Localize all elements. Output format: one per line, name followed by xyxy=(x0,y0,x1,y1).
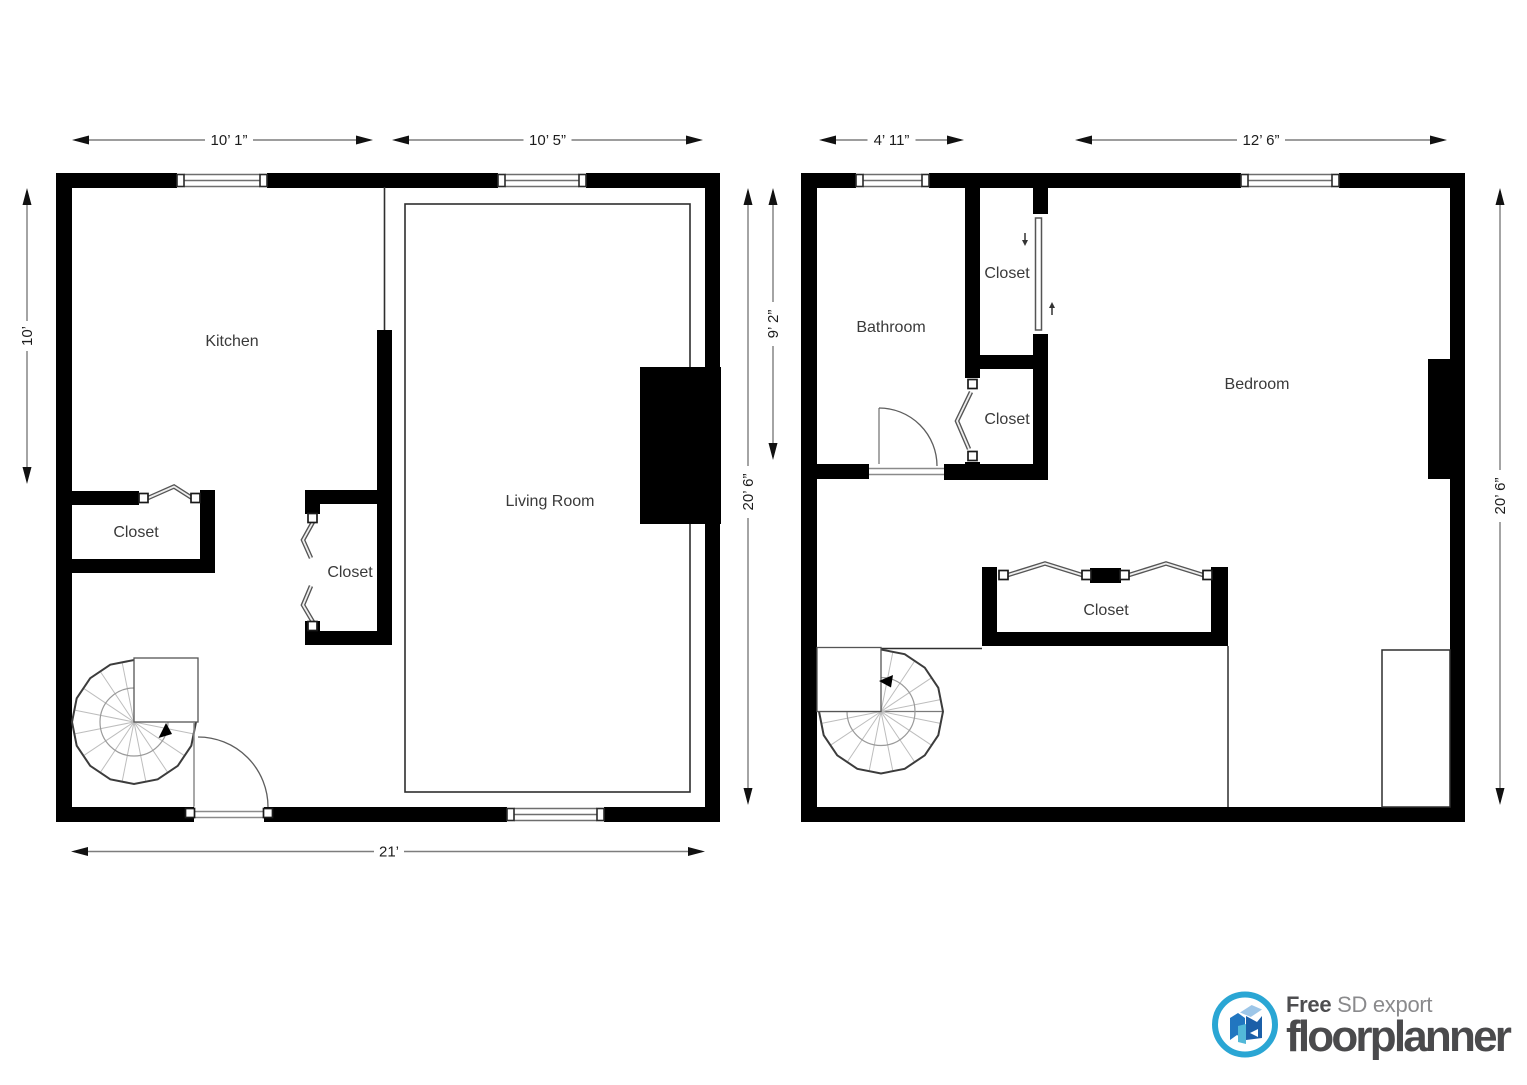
svg-text:Closet: Closet xyxy=(327,564,373,581)
svg-text:10’ 5”: 10’ 5” xyxy=(529,132,566,149)
svg-text:floorplanner: floorplanner xyxy=(1286,1012,1512,1061)
svg-text:Living Room: Living Room xyxy=(506,493,595,510)
svg-text:Bedroom: Bedroom xyxy=(1225,376,1290,393)
svg-text:20’ 6”: 20’ 6” xyxy=(1492,478,1509,515)
svg-text:Closet: Closet xyxy=(1083,602,1129,619)
svg-text:Closet: Closet xyxy=(113,524,159,541)
svg-text:20’ 6”: 20’ 6” xyxy=(740,474,757,511)
svg-text:21’: 21’ xyxy=(379,844,399,861)
svg-text:4’ 11”: 4’ 11” xyxy=(874,132,910,149)
svg-text:Closet: Closet xyxy=(984,265,1030,282)
svg-text:Kitchen: Kitchen xyxy=(205,333,258,350)
svg-text:Closet: Closet xyxy=(984,411,1030,428)
svg-text:12’ 6”: 12’ 6” xyxy=(1243,132,1280,149)
svg-text:9’ 2”: 9’ 2” xyxy=(765,310,782,339)
svg-text:Bathroom: Bathroom xyxy=(856,319,925,336)
svg-text:10’ 1”: 10’ 1” xyxy=(211,132,248,149)
svg-text:10’: 10’ xyxy=(19,326,36,346)
